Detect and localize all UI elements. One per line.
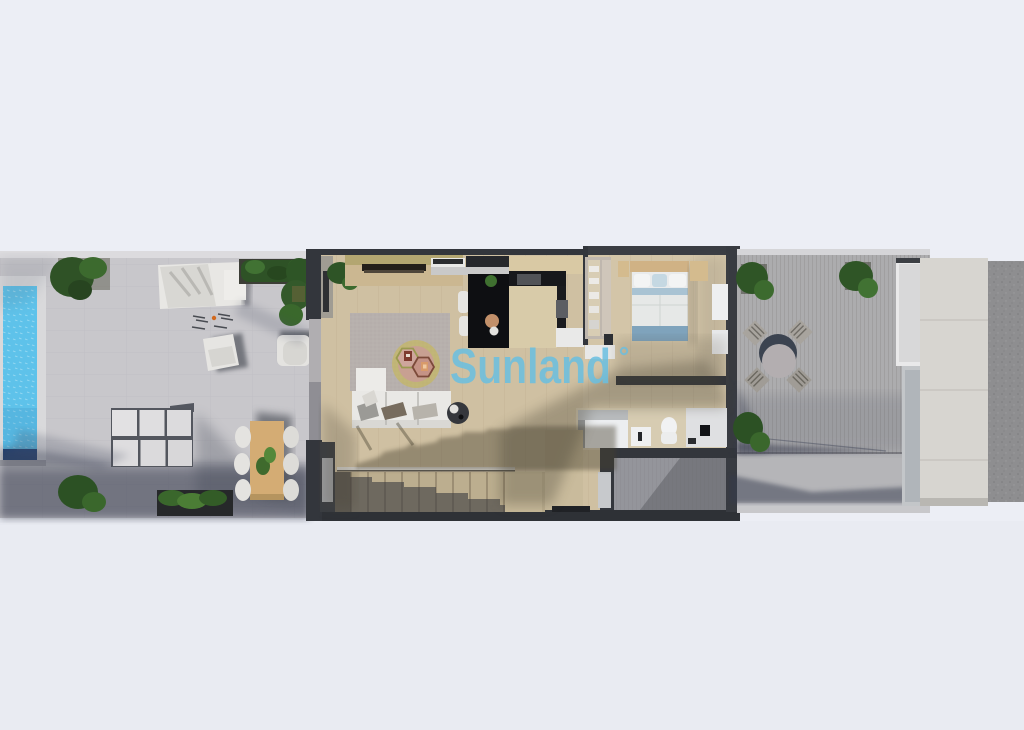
svg-text:Sunland: Sunland xyxy=(450,340,611,394)
